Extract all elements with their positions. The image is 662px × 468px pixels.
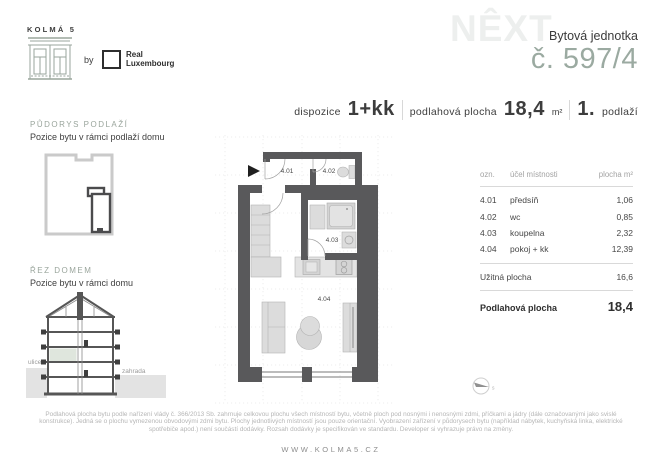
room-table-header: ozn. účel místnosti plocha m² (480, 170, 633, 186)
unit-floorplan: 4.01 4.02 4.03 4.04 s (215, 135, 505, 405)
storey-label: podlaží (602, 106, 638, 118)
storey-plan-thumbnail (42, 150, 122, 246)
unit-floor-highlight (50, 349, 77, 362)
table-row: 4.01 předsíň 1,06 (480, 192, 633, 208)
usable-area-row: Užitná plocha 16,6 (480, 264, 633, 290)
washing-machine (342, 232, 356, 248)
legal-disclaimer: Podlahová plocha bytu podle nařízení vlá… (28, 411, 634, 433)
table-row: 4.04 pokoj + kk 12,39 (480, 241, 633, 257)
room-area: 12,39 (591, 244, 633, 254)
compass-icon: s (473, 378, 495, 394)
building-facade-illustration (27, 35, 73, 83)
room-id: 4.02 (480, 212, 510, 222)
brand-title: KOLMÁ 5 (27, 25, 74, 34)
room-purpose: wc (510, 212, 591, 222)
summary-divider (569, 100, 570, 120)
room-purpose: předsíň (510, 195, 591, 205)
room-purpose: pokoj + kk (510, 244, 591, 254)
floor-area-unit: m² (552, 107, 563, 117)
floor-area-label: podlahová plocha (410, 106, 497, 118)
disposition-value: 1+kk (348, 98, 395, 121)
partner-logo: Real Luxembourg (102, 50, 180, 69)
unit-position-shape (88, 188, 110, 232)
house-section-subtitle: Pozice bytu v rámci domu (30, 278, 133, 288)
col-id-header: ozn. (480, 170, 510, 179)
room-id: 4.01 (480, 195, 510, 205)
wardrobe (343, 303, 357, 352)
room-label-404: 4.04 (318, 296, 331, 303)
garden-ground (115, 375, 166, 398)
storey-value: 1. (577, 98, 595, 121)
room-id: 4.03 (480, 228, 510, 238)
room-label-401: 4.01 (281, 168, 294, 175)
hob (336, 260, 352, 275)
room-area: 2,32 (591, 228, 633, 238)
unit-type-label: Bytová jednotka (549, 29, 638, 43)
table-row: 4.02 wc 0,85 (480, 208, 633, 224)
street-label: ulice (28, 359, 42, 366)
toilet (338, 166, 356, 179)
kitchen-tall-unit (251, 205, 270, 257)
room-area: 0,85 (591, 212, 633, 222)
shower (327, 203, 355, 229)
table-row: 4.03 koupelna 2,32 (480, 225, 633, 241)
storey-plan-subtitle: Pozice bytu v rámci podlaží domu (30, 132, 165, 142)
room-area: 1,06 (591, 195, 633, 205)
storey-plan-title: PŮDORYS PODLAŽÍ (30, 120, 128, 129)
entrance-arrow-icon (248, 165, 260, 177)
bathroom-cabinet (310, 205, 325, 229)
room-table: ozn. účel místnosti plocha m² 4.01 předs… (480, 170, 633, 314)
floor-area-total-label: Podlahová plocha (480, 303, 591, 313)
room-label-402: 4.02 (323, 168, 336, 175)
usable-area-label: Užitná plocha (480, 272, 591, 282)
house-section-title: ŘEZ DOMEM (30, 266, 92, 275)
garden-label: zahrada (122, 368, 146, 375)
room-label-403: 4.03 (326, 237, 339, 244)
kitchen-corner-unit (251, 257, 281, 277)
room-purpose: koupelna (510, 228, 591, 238)
unit-number: č. 597/4 (531, 43, 638, 76)
compass-north-label: s (492, 386, 495, 392)
summary-divider (402, 100, 403, 120)
sofa (262, 302, 285, 353)
room-id: 4.04 (480, 244, 510, 254)
floor-area-row: Podlahová plocha 18,4 (480, 291, 633, 314)
house-section-thumbnail: ulice zahrada (26, 290, 166, 402)
floor-area-value: 18,4 (504, 98, 545, 121)
col-area-header: plocha m² (591, 170, 633, 179)
round-table (297, 317, 322, 350)
col-purpose-header: účel místnosti (510, 170, 591, 179)
brochure-page: KOLMÁ 5 by Real Luxembourg NÊXT Bytová j… (0, 0, 662, 468)
disposition-label: dispozice (294, 106, 340, 118)
floor-area-total-value: 18,4 (591, 299, 633, 314)
partner-logo-square-icon (102, 50, 121, 69)
chimney (77, 292, 83, 320)
summary-bar: dispozice 1+kk podlahová plocha 18,4 m² … (294, 98, 638, 121)
street-ground (26, 368, 47, 398)
website-link[interactable]: WWW.KOLMA5.CZ (0, 445, 662, 454)
usable-area-value: 16,6 (591, 272, 633, 282)
by-label: by (84, 55, 94, 65)
partner-logo-text: Real Luxembourg (126, 51, 180, 68)
